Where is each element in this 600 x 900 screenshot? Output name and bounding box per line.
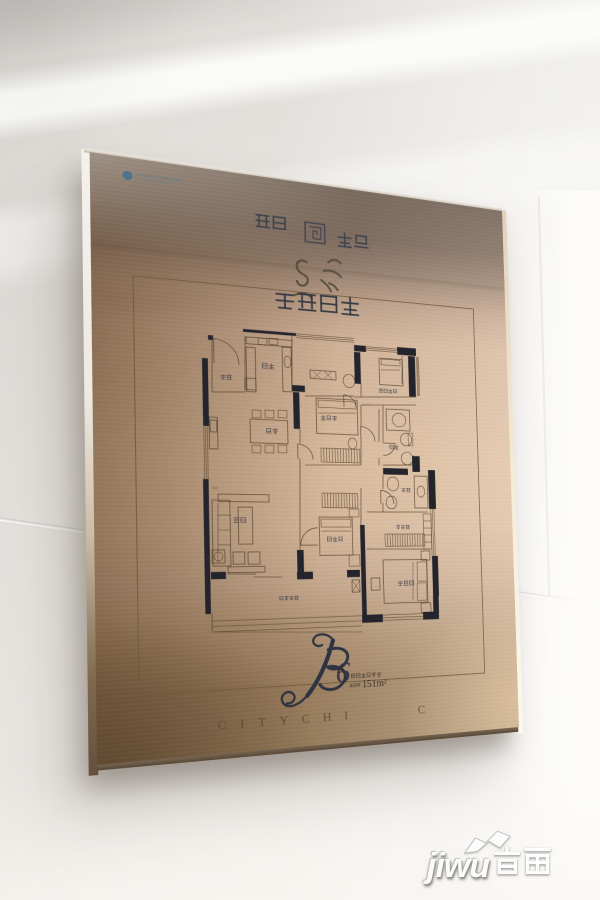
svg-text:151m²: 151m² (362, 678, 387, 690)
svg-text:CITYCHI: CITYCHI (217, 708, 361, 733)
svg-text:6: 6 (335, 656, 350, 690)
svg-text:C: C (418, 703, 426, 716)
